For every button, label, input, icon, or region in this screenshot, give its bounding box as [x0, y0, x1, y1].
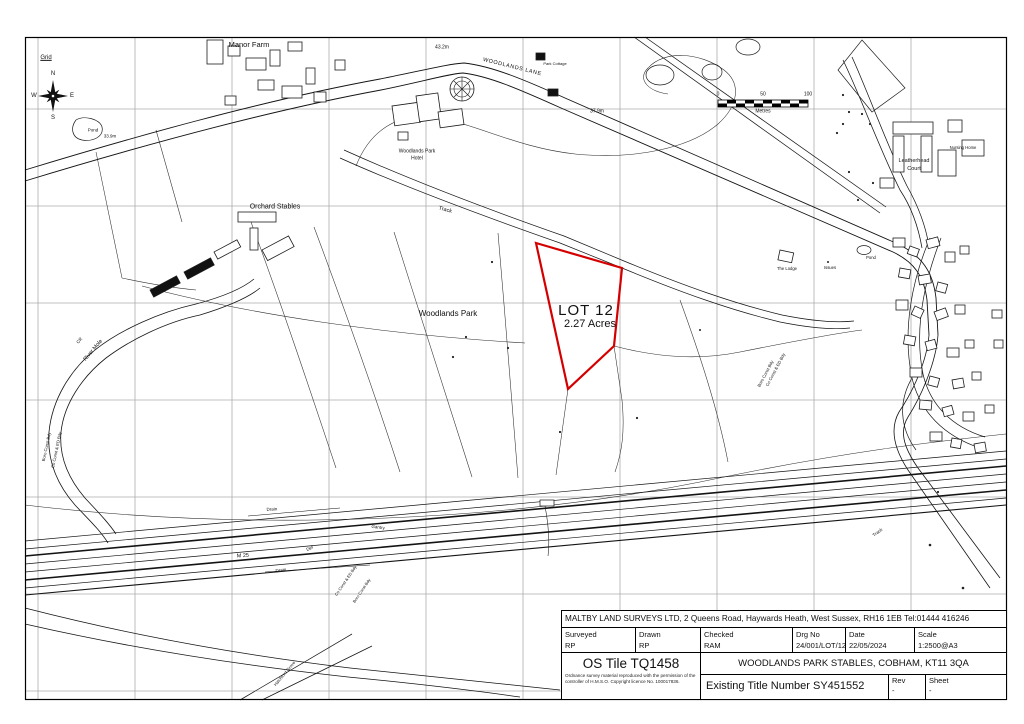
- label-co-const-bdy-west: Co Const & ED Bdy: [51, 432, 63, 469]
- label-track-top: Track: [438, 206, 453, 215]
- label-nursing-home: Nursing Home: [950, 146, 977, 150]
- compass-grid-label: Grid: [40, 55, 51, 61]
- label-the-lodge: The Lodge: [777, 267, 797, 271]
- compass-west-label: W: [31, 93, 37, 99]
- sheet-cell: Sheet -: [926, 675, 1006, 699]
- label-lot-area: 2.27 Acres: [564, 319, 616, 331]
- scalebar-tick-0: 0: [717, 92, 720, 97]
- field-drawn-value: RP: [639, 640, 697, 651]
- rev-label: Rev: [892, 676, 922, 686]
- field-drg-no-label: Drg No: [796, 629, 842, 640]
- label-cr: CR: [76, 337, 84, 345]
- compass-south-label: S: [51, 115, 55, 121]
- field-checked: Checked RAM: [701, 628, 793, 652]
- survey-plan-page: { "map": { "lot": { "name": "LOT 12", "a…: [0, 0, 1024, 724]
- label-drain-south: Drain: [275, 568, 286, 574]
- label-drain-north: Drain: [266, 507, 277, 512]
- label-pond-nw: Pond: [88, 129, 99, 134]
- label-woodlands-lane: WOODLANDS LANE: [482, 58, 542, 78]
- field-checked-value: RAM: [704, 640, 789, 651]
- label-track-southeast: Track: [872, 528, 884, 539]
- field-date: Date 22/05/2024: [846, 628, 915, 652]
- sheet-value: -: [929, 686, 1003, 696]
- compass-north-label: N: [51, 71, 55, 77]
- title-block-lower-row: OS Tile TQ1458 Ordnance survey material …: [562, 653, 1006, 699]
- field-scale-label: Scale: [918, 629, 1003, 640]
- field-date-label: Date: [849, 629, 911, 640]
- label-spot-height-37: 37.9m: [590, 109, 604, 114]
- label-manor-farm: Manor Farm: [229, 41, 270, 49]
- label-spot-height-43: 43.2m: [435, 45, 449, 50]
- field-drg-no-value: 24/001/LOT/12: [796, 640, 842, 651]
- os-tile-reference: OS Tile TQ1458: [562, 655, 700, 672]
- label-hatchford-grove: Hatchford Grove: [273, 661, 296, 687]
- label-m25: M 25: [237, 554, 250, 561]
- label-pond-east: Pond: [866, 256, 876, 260]
- site-address: WOODLANDS PARK STABLES, COBHAM, KT11 3QA: [701, 653, 1006, 675]
- label-park-cottage: Park Cottage: [543, 62, 566, 66]
- os-copyright-note: Ordnance survey material reproduced with…: [562, 672, 700, 685]
- scalebar-tick-100: 100: [804, 92, 812, 97]
- field-drg-no: Drg No 24/001/LOT/12: [793, 628, 846, 652]
- title-number-row: Existing Title Number SY451552 Rev - She…: [701, 675, 1006, 699]
- existing-title-number: Existing Title Number SY451552: [701, 675, 889, 699]
- title-block-right: WOODLANDS PARK STABLES, COBHAM, KT11 3QA…: [701, 653, 1006, 699]
- label-river-mole: River Mole: [83, 339, 104, 363]
- field-surveyed-label: Surveyed: [565, 629, 632, 640]
- company-address-line: MALTBY LAND SURVEYS LTD, 2 Queens Road, …: [562, 611, 1006, 628]
- scalebar-tick-50: 50: [760, 92, 766, 97]
- label-woodlands-park-area: Woodlands Park: [419, 310, 478, 318]
- field-scale: Scale 1:2500@A3: [915, 628, 1006, 652]
- scalebar-unit: Metres: [755, 109, 770, 114]
- os-tile-cell: OS Tile TQ1458 Ordnance survey material …: [562, 653, 701, 699]
- rev-cell: Rev -: [889, 675, 926, 699]
- label-co-const-bdy-south: Co Const & ED Bdy: [334, 565, 357, 596]
- field-surveyed: Surveyed RP: [562, 628, 636, 652]
- label-issues: Issues: [824, 266, 836, 270]
- compass-east-label: E: [70, 93, 74, 99]
- field-drawn-label: Drawn: [639, 629, 697, 640]
- label-hotel-word: Hotel: [411, 156, 423, 161]
- label-spot-height-33: 33.9m: [104, 135, 117, 140]
- label-orchard-stables: Orchard Stables: [250, 203, 301, 210]
- label-lot-number: LOT 12: [558, 303, 614, 319]
- title-block-fields-row: Surveyed RP Drawn RP Checked RAM Drg No …: [562, 628, 1006, 653]
- label-hotel-name: Woodlands Park: [399, 149, 436, 154]
- label-gantry: Gantry: [371, 525, 385, 532]
- field-scale-value: 1:2500@A3: [918, 640, 1003, 651]
- label-boro-const-bdy-south: Boro Const Bdy: [352, 578, 371, 604]
- sheet-label: Sheet: [929, 676, 1003, 686]
- title-block: MALTBY LAND SURVEYS LTD, 2 Queens Road, …: [561, 610, 1007, 700]
- field-date-value: 22/05/2024: [849, 640, 911, 651]
- label-def: Def: [306, 545, 314, 552]
- label-leatherhead: Leatherhead: [899, 159, 930, 165]
- field-drawn: Drawn RP: [636, 628, 701, 652]
- field-checked-label: Checked: [704, 629, 789, 640]
- rev-value: -: [892, 686, 922, 696]
- label-leatherhead-court: Court: [907, 167, 920, 173]
- field-surveyed-value: RP: [565, 640, 632, 651]
- label-boro-const-bdy-west: Boro Const Bdy: [42, 432, 52, 462]
